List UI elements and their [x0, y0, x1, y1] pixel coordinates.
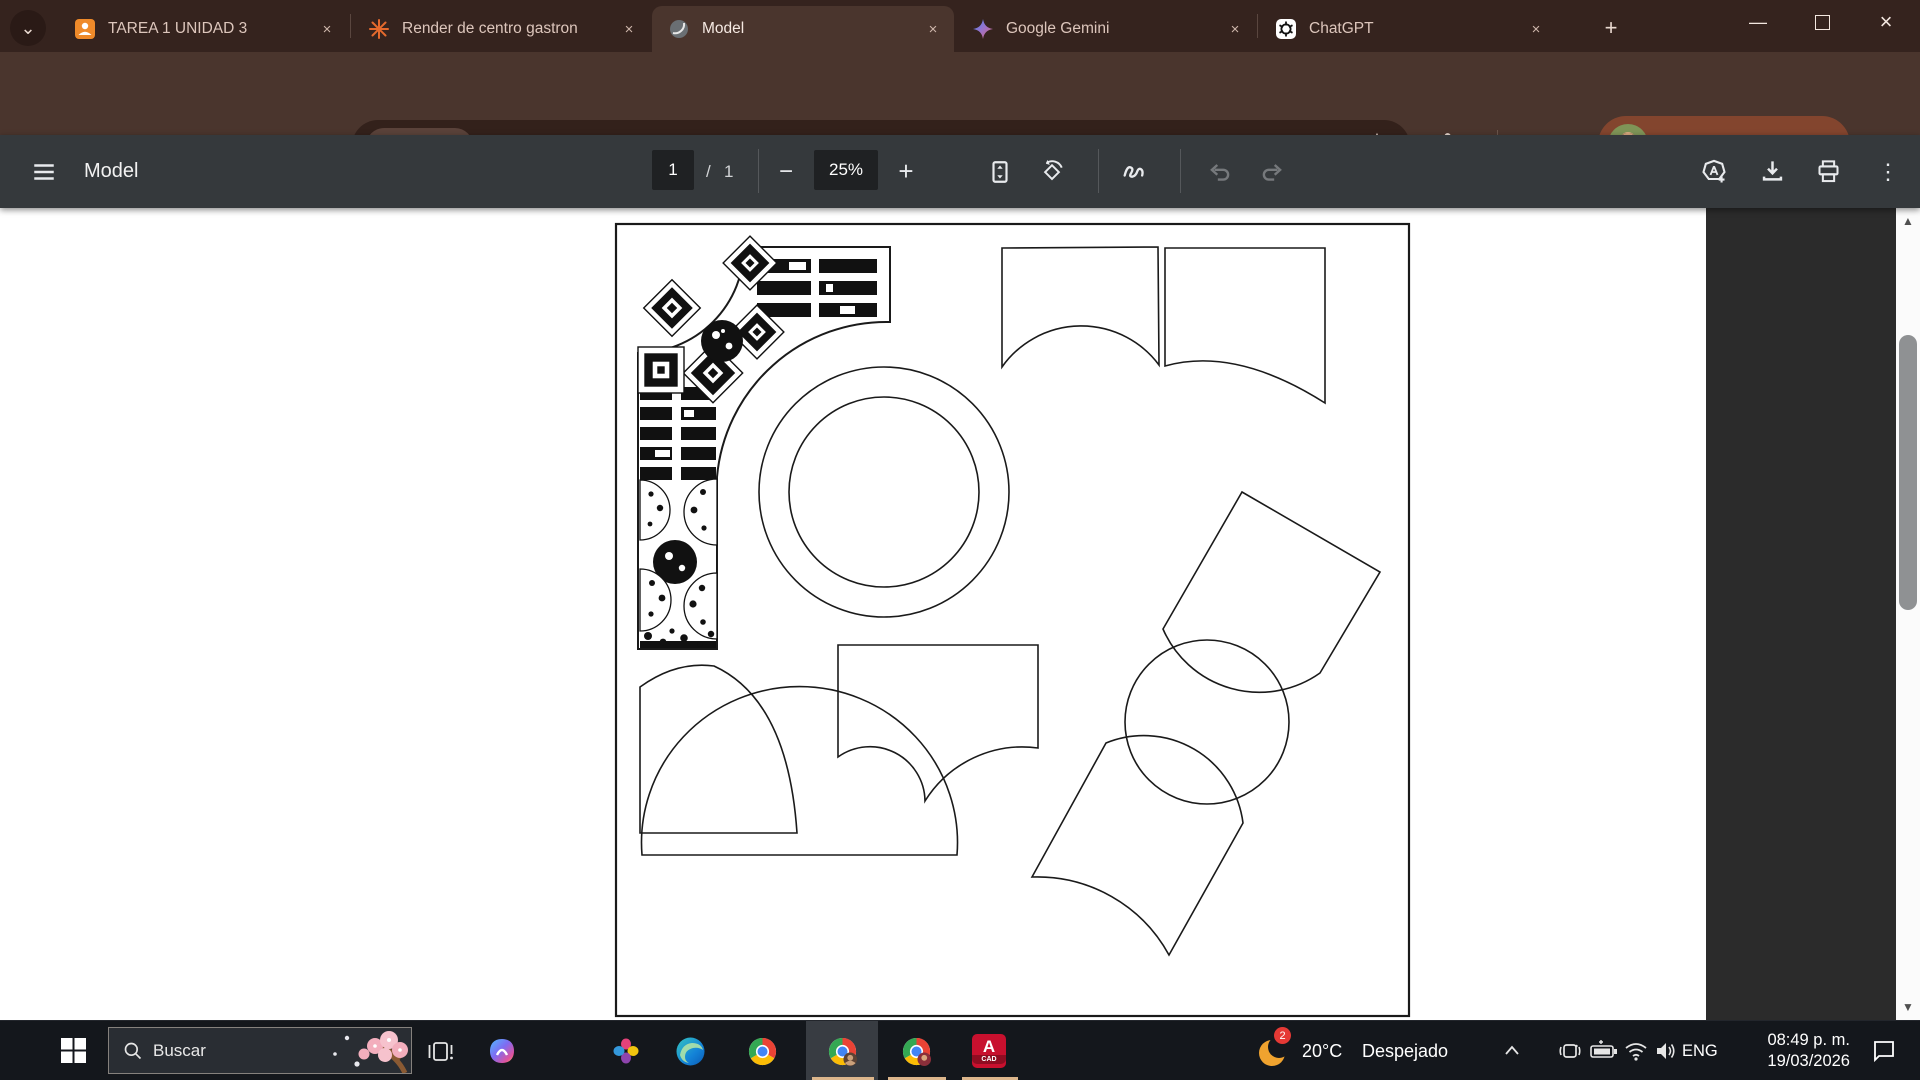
zoom-in-button[interactable]: +	[884, 135, 928, 208]
taskbar: Buscar	[0, 1020, 1920, 1080]
pdf-menu-hamburger-icon[interactable]	[22, 135, 66, 208]
pdf-download-icon[interactable]	[1750, 135, 1794, 208]
pdf-title: Model	[84, 135, 138, 208]
screen: ⌄ TAREA 1 UNIDAD 3 × Render de centro ga…	[0, 0, 1920, 1080]
weather-condition[interactable]: Despejado	[1362, 1021, 1448, 1080]
tab-title: TAREA 1 UNIDAD 3	[108, 20, 306, 38]
new-tab-button[interactable]: +	[1596, 13, 1626, 43]
clock[interactable]: 08:49 p. m. 19/03/2026	[1724, 1027, 1850, 1075]
volume-icon[interactable]	[1648, 1033, 1684, 1069]
circular-plaza-inner	[789, 397, 979, 587]
redo-button[interactable]	[1250, 135, 1294, 208]
chrome-active-icon[interactable]	[824, 1033, 860, 1069]
cast-device-icon[interactable]	[1552, 1033, 1588, 1069]
annotate-draw-icon[interactable]	[1112, 135, 1156, 208]
circular-plaza-outer	[759, 367, 1009, 617]
weather-icon[interactable]: 2	[1254, 1031, 1294, 1071]
taskbar-search[interactable]: Buscar	[108, 1027, 412, 1074]
pdf-divider	[1098, 149, 1099, 193]
tab-title: ChatGPT	[1309, 20, 1515, 38]
building-left-wedge	[640, 665, 797, 833]
tab-close-icon[interactable]: ×	[1222, 16, 1248, 42]
hedge-rows-top	[757, 259, 877, 317]
cad-sub: CAD	[972, 1055, 1006, 1064]
chatgpt-icon	[1275, 18, 1297, 40]
building-top-right-b	[1165, 248, 1325, 403]
tab-render-centro[interactable]: Render de centro gastron ×	[352, 6, 650, 52]
classroom-icon	[74, 18, 96, 40]
print-icon[interactable]	[1806, 135, 1850, 208]
fit-page-button[interactable]	[978, 135, 1022, 208]
tab-divider	[350, 14, 351, 38]
pdf-divider	[758, 149, 759, 193]
spark-icon	[368, 18, 390, 40]
start-button[interactable]	[60, 1037, 87, 1069]
pdf-menu-kebab-icon[interactable]: ⋮	[1866, 135, 1910, 208]
notification-badge: 2	[1274, 1027, 1291, 1044]
building-rotated-upper	[1163, 492, 1380, 692]
tab-strip: ⌄ TAREA 1 UNIDAD 3 × Render de centro ga…	[0, 0, 1920, 52]
annotate-text-icon[interactable]	[1692, 135, 1736, 208]
photos-icon[interactable]	[608, 1033, 644, 1069]
vertical-scrollbar[interactable]: ▲ ▼	[1896, 208, 1920, 1020]
chrome-profile2-icon[interactable]	[898, 1033, 934, 1069]
tab-chatgpt[interactable]: ChatGPT ×	[1259, 6, 1557, 52]
tab-close-icon[interactable]: ×	[314, 16, 340, 42]
edge-icon[interactable]	[672, 1033, 708, 1069]
windows-logo-icon	[60, 1037, 87, 1064]
autocad-icon[interactable]: A CAD	[972, 1034, 1006, 1068]
pdf-toolbar: Model 1 / 1 − 25% +	[0, 135, 1920, 208]
circular-building	[1125, 640, 1289, 804]
language-indicator[interactable]: ENG	[1682, 1021, 1718, 1080]
tab-title: Model	[702, 20, 912, 38]
tray-chevron-up-icon[interactable]	[1494, 1033, 1530, 1069]
scroll-up-icon[interactable]: ▲	[1901, 214, 1915, 228]
tab-close-icon[interactable]: ×	[1523, 16, 1549, 42]
diamond-trees	[638, 236, 784, 403]
undo-button[interactable]	[1198, 135, 1242, 208]
rotate-button[interactable]	[1030, 135, 1074, 208]
scroll-down-icon[interactable]: ▼	[1901, 1000, 1915, 1014]
tab-divider	[1257, 14, 1258, 38]
tab-title: Google Gemini	[1006, 20, 1214, 38]
battery-icon[interactable]	[1586, 1033, 1622, 1069]
copilot-icon[interactable]	[484, 1033, 520, 1069]
tab-search-button[interactable]: ⌄	[10, 10, 46, 46]
window-close-button[interactable]: ×	[1854, 0, 1918, 44]
viewer-background	[1706, 208, 1896, 1020]
action-center-icon[interactable]	[1866, 1033, 1902, 1069]
weather-temperature[interactable]: 20°C	[1302, 1021, 1342, 1080]
tab-close-icon[interactable]: ×	[616, 16, 642, 42]
window-maximize-button[interactable]	[1790, 0, 1854, 44]
cad-letter: A	[983, 1038, 995, 1055]
clock-time: 08:49 p. m.	[1724, 1031, 1850, 1050]
zoom-out-button[interactable]: −	[764, 135, 808, 208]
building-center	[838, 645, 1038, 801]
tab-google-gemini[interactable]: Google Gemini ×	[956, 6, 1256, 52]
tab-model-active[interactable]: Model ×	[652, 6, 954, 52]
sphere-icon	[668, 18, 690, 40]
tab-title: Render de centro gastron	[402, 20, 608, 38]
cad-drawing	[0, 208, 1706, 1020]
building-dome	[642, 687, 958, 855]
gemini-icon	[972, 18, 994, 40]
page-separator: /	[706, 135, 711, 208]
page-number-input[interactable]: 1	[652, 150, 694, 190]
tab-tarea-1-unidad-3[interactable]: TAREA 1 UNIDAD 3 ×	[58, 6, 348, 52]
chrome-icon[interactable]	[744, 1033, 780, 1069]
building-top-right-a	[1002, 247, 1159, 367]
building-rotated-lower	[1032, 736, 1243, 955]
task-view-icon[interactable]	[422, 1033, 458, 1069]
page-total: 1	[724, 135, 733, 208]
zoom-level-input[interactable]: 25%	[814, 150, 878, 190]
clock-date: 19/03/2026	[1724, 1052, 1850, 1071]
search-placeholder: Buscar	[153, 1041, 317, 1061]
pdf-divider	[1180, 149, 1181, 193]
blossom-art	[317, 1028, 411, 1073]
scrollbar-thumb[interactable]	[1899, 335, 1917, 610]
browser-toolbar: ← → Archivo C:/Users/PCgam/OneDrive/Docu…	[0, 52, 1920, 135]
maximize-icon	[1815, 15, 1830, 30]
search-icon	[123, 1041, 143, 1061]
window-minimize-button[interactable]: —	[1726, 0, 1790, 44]
tab-close-icon[interactable]: ×	[920, 16, 946, 42]
